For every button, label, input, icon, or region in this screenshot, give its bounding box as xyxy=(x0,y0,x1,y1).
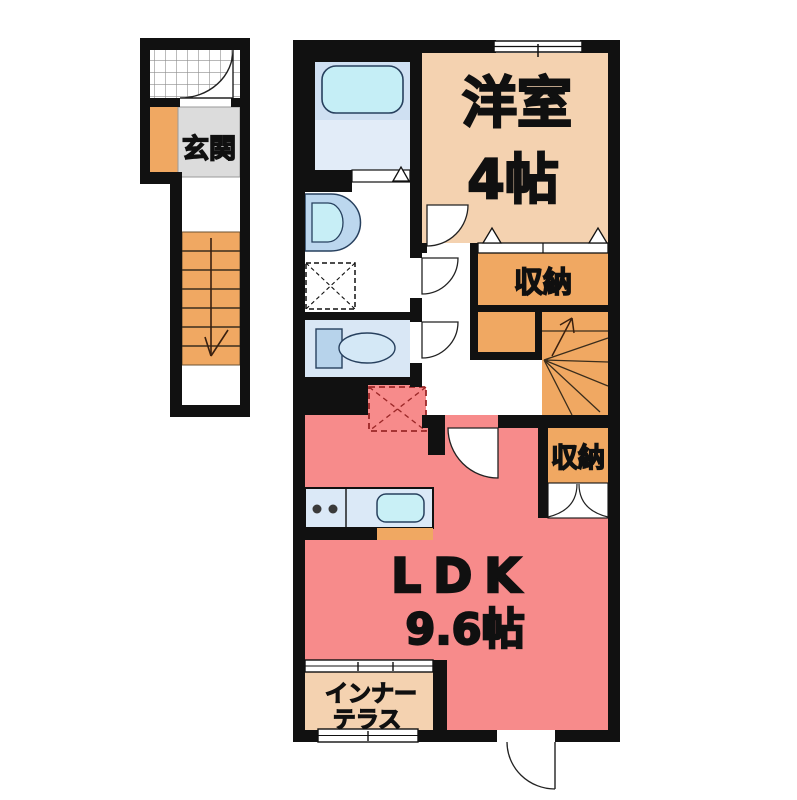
inner-terrace-label-line1: インナー xyxy=(325,681,417,707)
refrigerator-space-icon xyxy=(369,387,426,431)
wall-segment xyxy=(305,312,410,320)
hallway-understairs xyxy=(478,360,538,415)
wall-segment xyxy=(305,62,315,170)
floorplan-page: 玄関 xyxy=(0,0,797,800)
floor-plan: 玄関 xyxy=(0,0,797,800)
wall-segment xyxy=(305,170,352,192)
unit-entry-door-icon xyxy=(497,730,555,789)
wall-segment xyxy=(170,172,182,417)
wall-segment xyxy=(231,98,243,107)
wall-segment xyxy=(410,53,422,258)
washbasin-icon xyxy=(312,203,343,242)
ldk-size: 9.6帖 xyxy=(405,605,524,655)
door-opening xyxy=(497,730,555,742)
wall-segment xyxy=(410,298,422,322)
double-door-icon xyxy=(548,483,608,518)
wall-segment xyxy=(470,352,535,360)
storage-upper-label: 収納 xyxy=(514,265,572,299)
kitchen-stove-icon xyxy=(329,505,338,514)
wall-segment xyxy=(422,415,445,428)
kitchen-stove-icon xyxy=(313,505,322,514)
wall-segment xyxy=(293,40,496,53)
kitchen-counter-edge xyxy=(377,528,433,540)
wall-segment xyxy=(305,385,368,415)
wall-segment xyxy=(293,377,412,385)
storage-lower-label: 収納 xyxy=(551,442,605,474)
entrance-stair-block: 玄関 xyxy=(140,38,250,417)
genkan-label: 玄関 xyxy=(182,133,236,165)
washing-machine-space-icon xyxy=(306,263,355,309)
ldk-label: LDK xyxy=(391,549,532,604)
western-room-label: 洋室 xyxy=(462,71,572,135)
stair-landing xyxy=(478,312,535,352)
wall-segment xyxy=(410,243,427,253)
wall-segment xyxy=(140,38,250,50)
wall-segment xyxy=(555,730,620,742)
wall-segment xyxy=(140,98,180,107)
wall-segment xyxy=(428,428,445,455)
kitchen-sink-icon xyxy=(377,494,424,522)
kitchen-counter xyxy=(305,488,433,528)
wall-segment xyxy=(240,38,250,417)
wall-segment xyxy=(498,415,608,428)
wall-segment xyxy=(608,40,620,742)
wall-segment xyxy=(470,305,610,312)
shoe-cabinet xyxy=(150,107,178,172)
wall-segment xyxy=(433,660,447,730)
wall-segment xyxy=(293,40,305,742)
main-unit: 洋室 4帖 収納 収納 LDK 9.6帖 インナー テラス xyxy=(293,40,620,789)
wall-segment xyxy=(140,38,150,184)
western-room-size: 4帖 xyxy=(467,148,559,211)
wall-segment xyxy=(293,730,320,742)
wall-segment xyxy=(538,428,548,518)
wall-segment xyxy=(170,405,250,417)
bathtub-icon xyxy=(322,66,403,113)
wall-segment xyxy=(416,730,497,742)
wall-segment xyxy=(470,243,478,360)
wall-segment xyxy=(535,312,542,360)
inner-terrace-label-line2: テラス xyxy=(333,707,402,733)
wall-segment xyxy=(305,528,377,540)
wall-segment xyxy=(305,53,422,62)
window-icon xyxy=(305,660,433,672)
